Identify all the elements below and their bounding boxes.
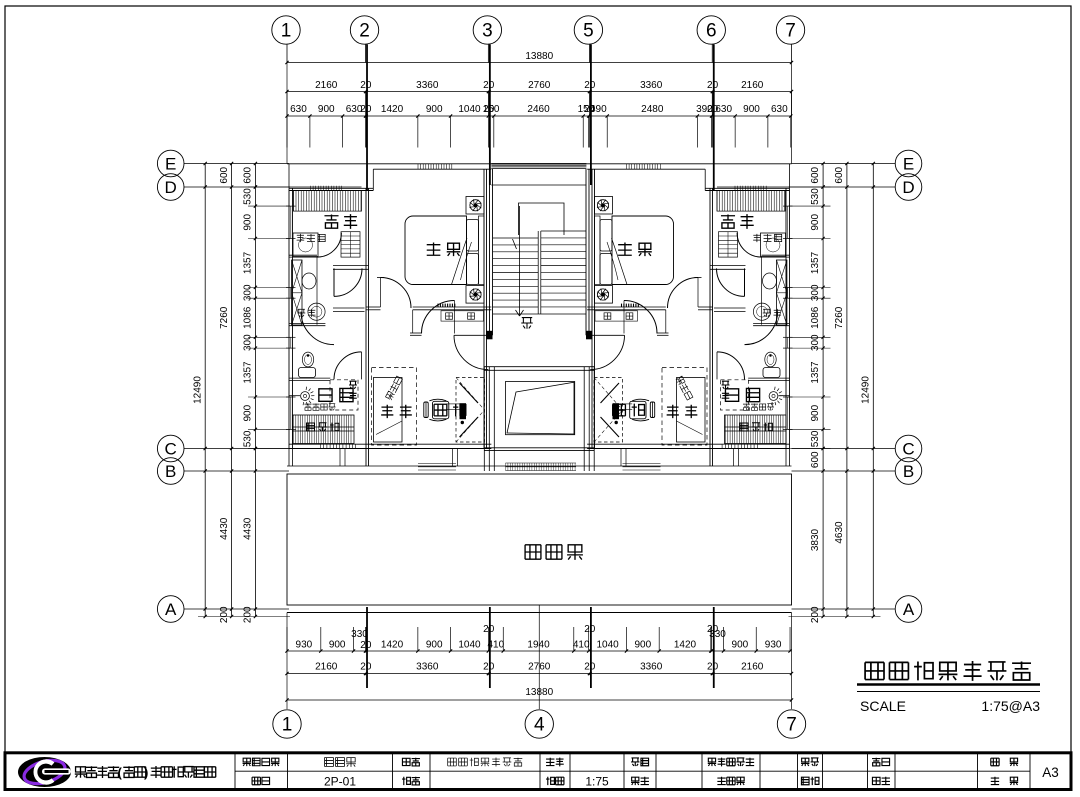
svg-text:SCALE: SCALE (860, 698, 906, 714)
svg-text:900: 900 (810, 404, 821, 421)
svg-text:3360: 3360 (640, 662, 663, 673)
svg-text:200: 200 (243, 606, 254, 623)
svg-text:2160: 2160 (741, 80, 764, 91)
svg-text:530: 530 (243, 430, 254, 447)
svg-text:13880: 13880 (525, 51, 553, 62)
svg-text:200: 200 (219, 606, 230, 623)
svg-text:2460: 2460 (527, 104, 550, 115)
svg-text:300: 300 (810, 284, 821, 301)
svg-text:1040: 1040 (458, 640, 481, 651)
svg-text:A: A (903, 600, 915, 619)
svg-text:900: 900 (243, 404, 254, 421)
svg-text:20: 20 (483, 80, 495, 91)
svg-text:E: E (903, 155, 914, 174)
svg-text:D: D (165, 178, 177, 197)
svg-text:5: 5 (583, 21, 594, 42)
svg-text:1420: 1420 (674, 640, 697, 651)
svg-text:600: 600 (243, 166, 254, 183)
svg-text:1086: 1086 (810, 306, 821, 329)
svg-text:D: D (902, 178, 914, 197)
svg-text:2160: 2160 (315, 662, 338, 673)
svg-text:4630: 4630 (834, 521, 845, 544)
svg-text:(: ( (118, 765, 123, 780)
svg-text:900: 900 (743, 104, 760, 115)
svg-text:1420: 1420 (381, 104, 404, 115)
svg-text:3360: 3360 (416, 80, 439, 91)
svg-text:A3: A3 (1042, 765, 1059, 780)
svg-text:900: 900 (810, 214, 821, 231)
svg-text:530: 530 (810, 430, 821, 447)
svg-text:20: 20 (360, 80, 372, 91)
svg-text:6: 6 (706, 21, 717, 42)
svg-text:B: B (165, 462, 176, 481)
svg-text:600: 600 (219, 166, 230, 183)
svg-text:1940: 1940 (527, 640, 550, 651)
svg-text:2480: 2480 (641, 104, 664, 115)
svg-text:20: 20 (584, 662, 596, 673)
svg-text:930: 930 (296, 640, 313, 651)
svg-text:530: 530 (243, 188, 254, 205)
svg-text:930: 930 (765, 640, 782, 651)
svg-text:900: 900 (426, 104, 443, 115)
svg-text:12490: 12490 (192, 376, 203, 404)
svg-text:900: 900 (243, 214, 254, 231)
svg-text:20: 20 (707, 662, 719, 673)
svg-text:330: 330 (351, 629, 368, 640)
svg-text:): ) (144, 765, 148, 780)
svg-text:900: 900 (426, 640, 443, 651)
svg-text:1: 1 (282, 715, 293, 736)
svg-text:1040: 1040 (596, 640, 619, 651)
svg-text:600: 600 (834, 166, 845, 183)
svg-text:20: 20 (483, 662, 495, 673)
svg-text:600: 600 (810, 166, 821, 183)
svg-text:600: 600 (810, 451, 821, 468)
svg-text:20: 20 (707, 80, 719, 91)
svg-text:C: C (902, 440, 914, 459)
svg-text:7260: 7260 (219, 306, 230, 329)
svg-text:900: 900 (329, 640, 346, 651)
svg-text:1357: 1357 (810, 251, 821, 274)
svg-text:1:75@A3: 1:75@A3 (981, 698, 1040, 714)
svg-text:2760: 2760 (528, 80, 551, 91)
svg-text:1086: 1086 (243, 306, 254, 329)
svg-text:1357: 1357 (810, 361, 821, 384)
svg-text:630: 630 (290, 104, 307, 115)
svg-text:7: 7 (786, 715, 797, 736)
svg-text:300: 300 (243, 334, 254, 351)
svg-text:200: 200 (810, 606, 821, 623)
svg-text:20: 20 (707, 624, 719, 635)
svg-text:4: 4 (534, 715, 545, 736)
svg-text:E: E (165, 155, 176, 174)
svg-text:1357: 1357 (243, 361, 254, 384)
svg-text:7260: 7260 (834, 306, 845, 329)
svg-text:1420: 1420 (381, 640, 404, 651)
svg-text:1:75: 1:75 (585, 775, 609, 789)
svg-text:2: 2 (359, 21, 370, 42)
svg-text:20: 20 (584, 104, 596, 115)
svg-text:410: 410 (573, 640, 590, 651)
svg-text:630: 630 (771, 104, 788, 115)
svg-text:2P-01: 2P-01 (324, 775, 356, 789)
svg-text:3830: 3830 (810, 528, 821, 551)
svg-text:300: 300 (810, 334, 821, 351)
svg-text:2160: 2160 (315, 80, 338, 91)
svg-text:900: 900 (732, 640, 749, 651)
svg-text:12490: 12490 (860, 376, 871, 404)
svg-text:2160: 2160 (741, 662, 764, 673)
svg-text:7: 7 (785, 21, 796, 42)
svg-text:900: 900 (318, 104, 335, 115)
svg-text:3: 3 (482, 21, 493, 42)
svg-text:20: 20 (707, 104, 719, 115)
svg-text:900: 900 (634, 640, 651, 651)
svg-text:530: 530 (810, 188, 821, 205)
svg-text:20: 20 (483, 104, 495, 115)
svg-text:300: 300 (243, 284, 254, 301)
svg-text:A: A (165, 600, 177, 619)
svg-text:C: C (165, 440, 177, 459)
svg-text:20: 20 (584, 80, 596, 91)
svg-text:1357: 1357 (243, 251, 254, 274)
svg-text:20: 20 (360, 662, 372, 673)
svg-text:20: 20 (483, 624, 495, 635)
svg-text:B: B (903, 462, 914, 481)
svg-text:4430: 4430 (219, 517, 230, 540)
svg-text:20: 20 (360, 104, 372, 115)
svg-text:20: 20 (360, 640, 372, 651)
svg-text:3360: 3360 (640, 80, 663, 91)
svg-text:20: 20 (584, 624, 596, 635)
svg-text:3360: 3360 (416, 662, 439, 673)
svg-text:1: 1 (281, 21, 292, 42)
svg-text:4430: 4430 (243, 517, 254, 540)
svg-text:1040: 1040 (458, 104, 481, 115)
